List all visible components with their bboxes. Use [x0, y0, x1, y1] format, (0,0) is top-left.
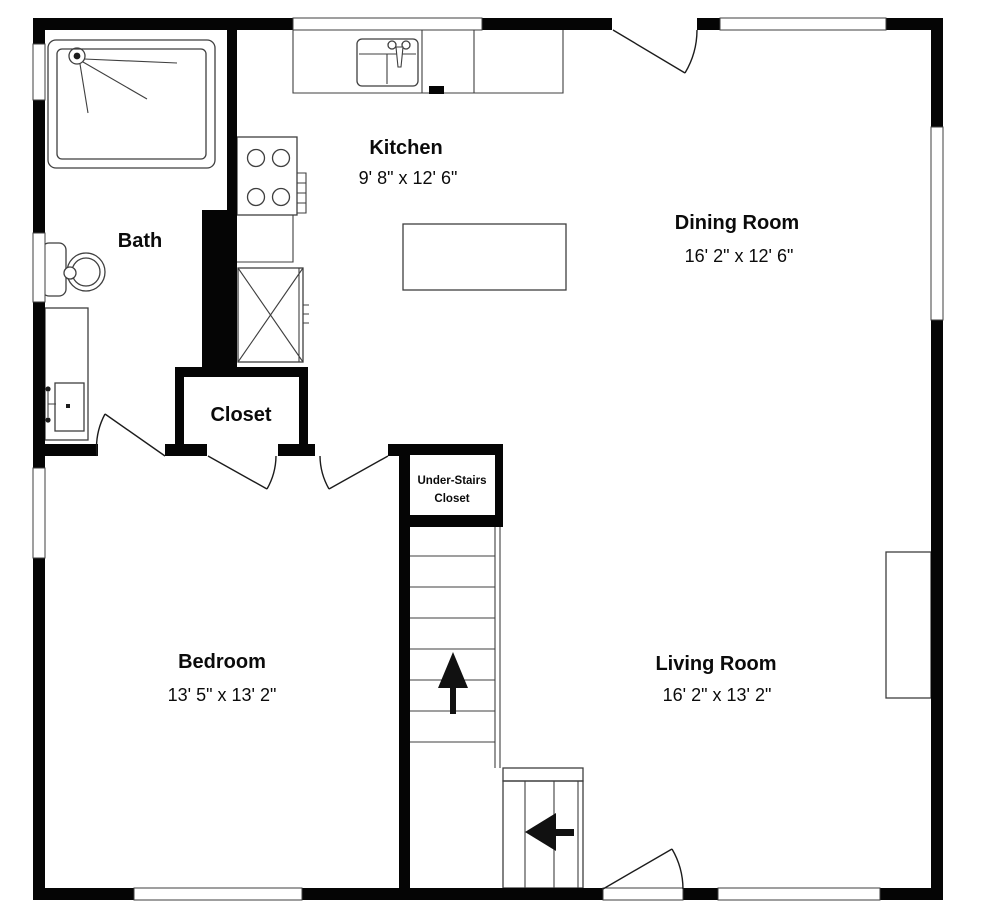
living-room-builtin	[886, 552, 931, 698]
kitchen-appliance	[238, 268, 309, 362]
wall-understairs-south	[399, 515, 503, 527]
window-living-bottom	[718, 888, 880, 900]
wall-understairs-east	[495, 444, 503, 527]
wall-closet-west	[175, 367, 184, 456]
wall-right-2	[931, 320, 943, 900]
kitchen-counter	[293, 30, 563, 94]
door-closet	[208, 456, 276, 489]
stair-landing	[503, 768, 583, 781]
stair-treads-up-flight	[410, 556, 495, 742]
wall-bottom-1	[33, 888, 134, 900]
toilet-tank	[42, 243, 66, 296]
wall-closet-north	[175, 367, 308, 377]
wall-understairs-north	[399, 444, 503, 455]
stairs-up-arrow-icon	[438, 652, 468, 714]
stove	[237, 137, 306, 215]
vanity-faucet-dot-2	[45, 417, 50, 422]
appliance-x-mark	[238, 268, 309, 362]
kitchen-island	[403, 224, 566, 290]
living-room-label: Living Room	[655, 653, 776, 675]
window-dining-right	[931, 127, 943, 320]
door-dining-top	[613, 30, 697, 73]
door-bedroom	[320, 456, 388, 489]
wall-bottom-3	[683, 888, 718, 900]
floor-plan-svg: Kitchen 9' 8" x 12' 6" Dining Room 16' 2…	[0, 0, 1000, 916]
kitchen-label: Kitchen	[369, 137, 442, 159]
shower	[48, 40, 215, 168]
window-bath-left-1	[33, 44, 45, 100]
toilet	[42, 243, 105, 296]
window-bath-left-2	[33, 233, 45, 302]
bath-label: Bath	[118, 230, 162, 252]
counter-marker	[429, 86, 444, 94]
toilet-hinge	[64, 267, 76, 279]
wall-right-1	[931, 18, 943, 127]
dining-room-dims: 16' 2" x 12' 6"	[685, 246, 794, 266]
sink-faucet-knob-1	[388, 41, 396, 49]
wall-bottom-2	[302, 888, 603, 900]
wall-left-1	[33, 18, 45, 44]
stairs-left-arrow-icon	[525, 813, 574, 851]
bath-vanity	[45, 308, 88, 440]
closet-label: Closet	[210, 404, 271, 426]
wall-bedroom-north-3	[278, 444, 315, 456]
stove-handle-ticks	[297, 173, 306, 213]
living-room-dims: 16' 2" x 13' 2"	[663, 685, 772, 705]
door-bath	[97, 414, 165, 456]
window-bedroom-left	[33, 468, 45, 558]
wall-left-4	[33, 558, 45, 900]
window-bedroom-bottom	[134, 888, 302, 900]
wall-left-3	[33, 302, 45, 468]
wall-bath-east-upper	[227, 30, 237, 210]
door-front-entry	[603, 849, 683, 889]
vanity-drain-dot	[66, 404, 70, 408]
wall-closet-east	[299, 367, 308, 456]
kitchen-dims: 9' 8" x 12' 6"	[359, 168, 458, 188]
wall-bedroom-north-2	[165, 444, 207, 456]
shower-pan-outer	[48, 40, 215, 168]
wall-top-mid	[482, 18, 612, 30]
floor-plan-page: Kitchen 9' 8" x 12' 6" Dining Room 16' 2…	[0, 0, 1000, 916]
stove-body	[237, 137, 297, 215]
wall-bedroom-east	[399, 444, 410, 888]
understairs-label-line2: Closet	[434, 493, 469, 505]
vanity-counter	[45, 308, 88, 440]
wall-top-door-jamb	[697, 18, 720, 30]
counter-outline	[293, 30, 563, 93]
wall-left-2	[33, 100, 45, 233]
front-door-threshold	[603, 888, 683, 900]
wall-bedroom-north-1	[45, 444, 98, 456]
understairs-label-line1: Under-Stairs	[417, 475, 486, 487]
counter-below-stove	[237, 215, 293, 262]
vanity-faucet-dot-1	[45, 386, 50, 391]
wall-bath-east-lower	[202, 210, 237, 368]
shower-drain-dot	[74, 53, 81, 60]
staircase	[410, 527, 583, 888]
bedroom-dims: 13' 5" x 13' 2"	[168, 685, 277, 705]
kitchen-sink	[357, 39, 418, 86]
wall-top-left	[33, 18, 293, 30]
bedroom-label: Bedroom	[178, 651, 266, 673]
window-dining-top	[720, 18, 886, 30]
dining-room-label: Dining Room	[675, 212, 799, 234]
stair-stringer-lines	[495, 527, 500, 768]
window-kitchen-top	[293, 18, 482, 30]
